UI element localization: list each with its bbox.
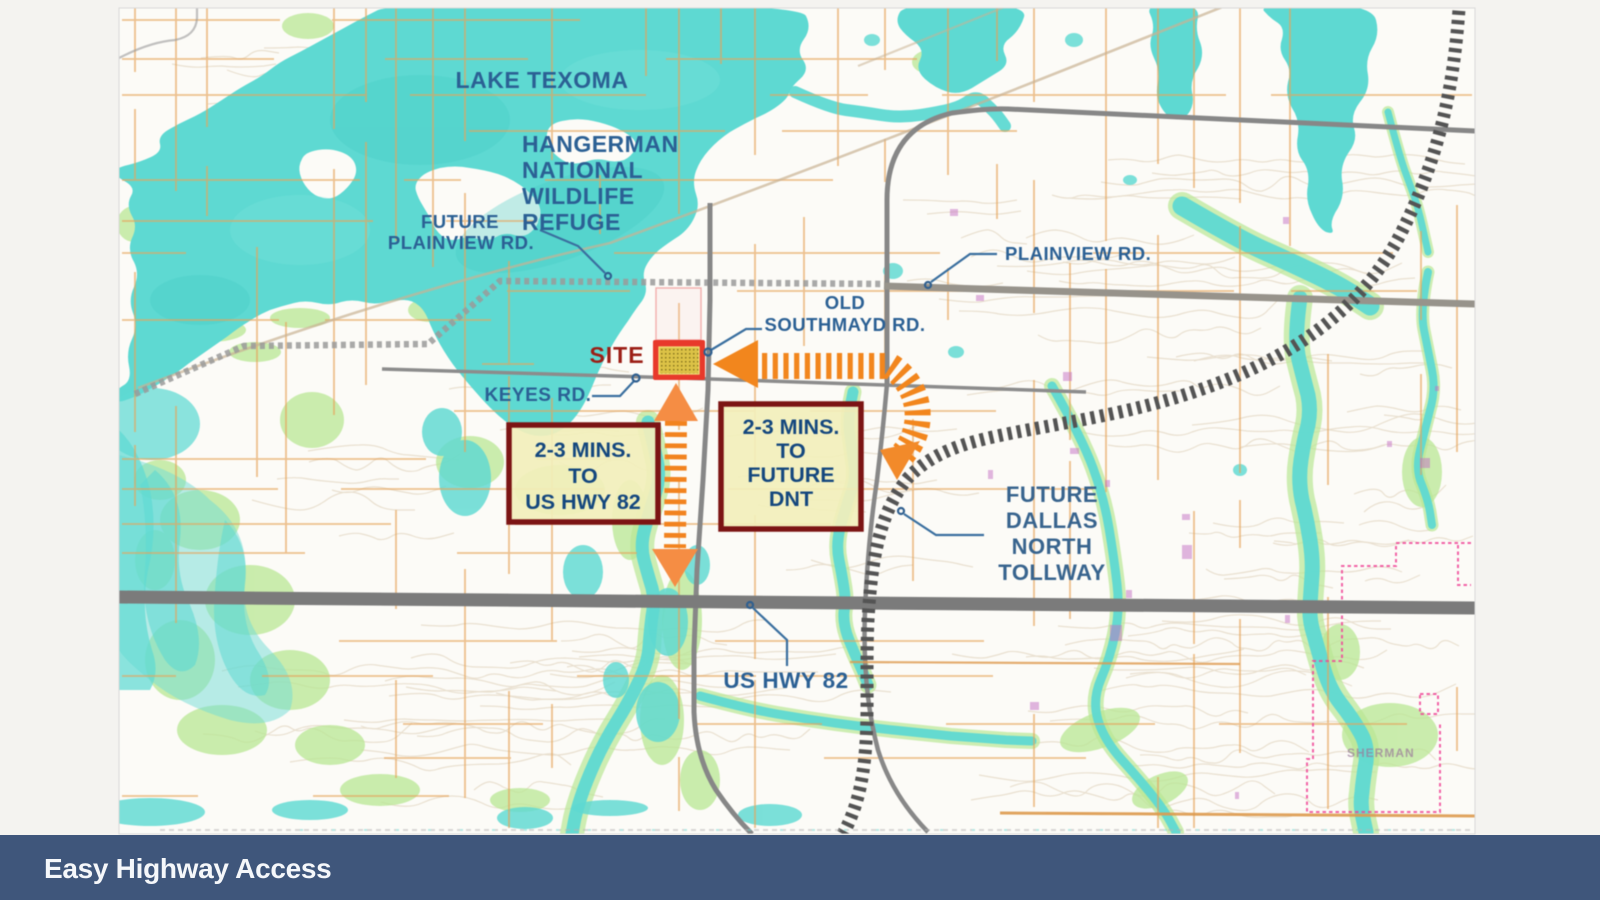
svg-text:SOUTHMAYD RD.: SOUTHMAYD RD. <box>764 314 925 335</box>
svg-text:FUTUREDALLASNORTHTOLLWAY: FUTUREDALLASNORTHTOLLWAY <box>998 482 1105 585</box>
svg-text:KEYES RD.: KEYES RD. <box>485 385 592 406</box>
svg-text:PLAINVIEW RD.: PLAINVIEW RD. <box>1005 243 1151 264</box>
svg-text:LAKE TEXOMA: LAKE TEXOMA <box>456 67 629 93</box>
svg-text:SHERMAN: SHERMAN <box>1347 746 1415 760</box>
svg-text:US HWY 82: US HWY 82 <box>723 668 848 693</box>
svg-text:SITE: SITE <box>589 342 644 368</box>
svg-text:FUTURE: FUTURE <box>421 211 499 232</box>
svg-text:OLD: OLD <box>825 292 866 313</box>
svg-text:PLAINVIEW RD.: PLAINVIEW RD. <box>388 232 534 253</box>
